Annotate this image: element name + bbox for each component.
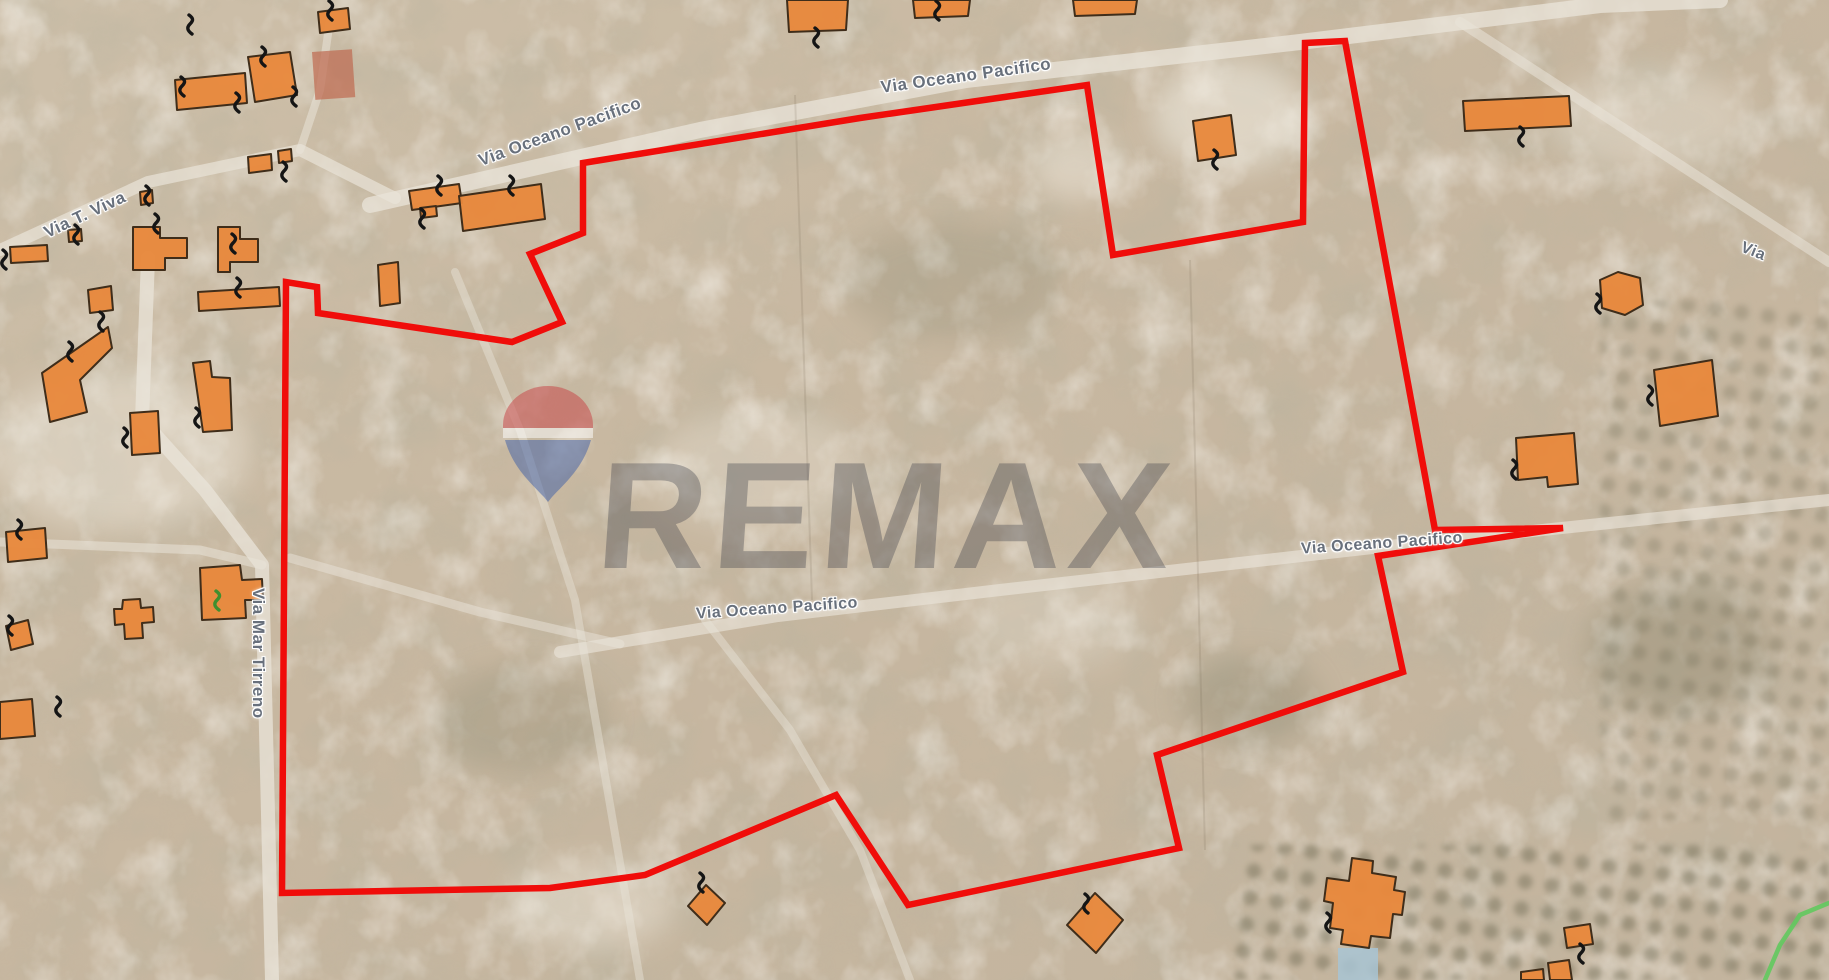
dark-terrain-patch — [430, 665, 610, 775]
building-footprint — [1516, 433, 1578, 487]
olive-grove — [1235, 845, 1829, 980]
balloon-top-red — [503, 386, 593, 428]
dark-terrain-patch — [840, 220, 1060, 340]
building-footprint — [6, 528, 47, 562]
building-footprint — [10, 245, 48, 263]
building-footprint — [318, 8, 350, 33]
building-footprint — [787, 0, 848, 32]
remax-watermark-text: REMAX — [593, 440, 1183, 592]
building-footprint — [198, 287, 280, 311]
building-footprint — [1600, 272, 1643, 315]
remax-balloon-icon — [493, 378, 603, 513]
building-footprint — [0, 699, 35, 739]
building-footprint — [1463, 96, 1571, 131]
building-footprint — [378, 262, 400, 306]
balloon-white-band — [503, 428, 593, 438]
building-footprint — [130, 411, 160, 455]
building-footprint — [1521, 969, 1544, 980]
swimming-pool — [1338, 948, 1378, 980]
balloon-bottom-blue — [505, 440, 591, 502]
building-footprint — [913, 0, 970, 18]
building-footprint — [1073, 0, 1137, 16]
light-terrain-patch — [1550, 70, 1750, 170]
road-label: Via Mar Tirreno — [248, 588, 268, 719]
map-canvas[interactable]: REMAX Via Oceano PacificoVia Oceano Paci… — [0, 0, 1829, 980]
clay-court — [312, 49, 355, 100]
building-footprint — [1193, 115, 1236, 161]
light-terrain-patch — [1030, 130, 1120, 200]
building-footprint — [248, 154, 272, 173]
building-footprint — [278, 149, 292, 163]
building-footprint — [248, 52, 297, 102]
building-footprint — [88, 286, 113, 313]
building-footprint — [1548, 960, 1572, 980]
building-footprint — [1654, 360, 1718, 426]
